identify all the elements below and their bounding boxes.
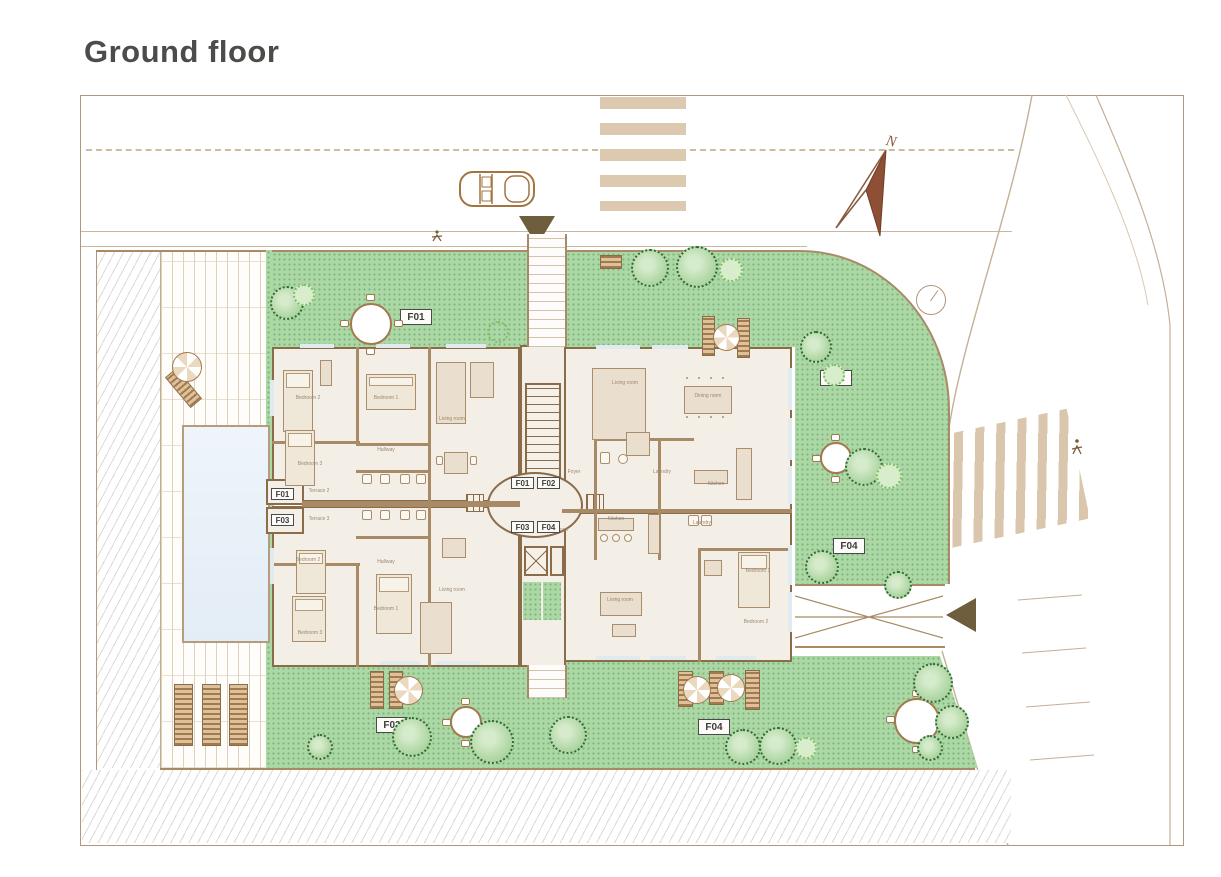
apartment-label-f04: F04 xyxy=(698,719,730,735)
room-label: Bedroom 1 xyxy=(736,569,780,575)
armchair xyxy=(470,362,494,398)
garden-chair xyxy=(831,476,840,483)
chair xyxy=(722,416,724,418)
atrium-planter xyxy=(543,582,561,620)
sidewalk-edge xyxy=(567,246,807,247)
tree xyxy=(307,734,333,760)
side-hatch-area xyxy=(96,252,160,768)
bath-fixture xyxy=(416,474,426,484)
ottoman xyxy=(626,432,650,456)
room-label: Foyer xyxy=(558,470,590,476)
shaft xyxy=(550,546,564,576)
window xyxy=(270,380,274,416)
tree xyxy=(917,735,943,761)
garden-chair xyxy=(394,320,403,327)
garden-chair xyxy=(442,719,451,726)
bath-fixture xyxy=(400,510,410,520)
sink xyxy=(618,454,628,464)
window xyxy=(716,656,756,660)
sofa xyxy=(600,592,642,616)
bed xyxy=(285,430,315,486)
window xyxy=(788,418,792,460)
parasol-icon xyxy=(394,676,423,705)
tree xyxy=(823,364,845,386)
door-label-f03: F03 xyxy=(511,521,534,533)
garden-chair xyxy=(366,348,375,355)
room-label: Bedroom 2 xyxy=(286,396,330,402)
window xyxy=(376,344,410,348)
chair xyxy=(710,377,712,379)
room-label: Hallway xyxy=(364,560,408,566)
room-label: Kitchen xyxy=(698,482,734,488)
interior-wall xyxy=(594,512,597,560)
room-label: Dining room xyxy=(684,394,732,400)
window xyxy=(380,661,420,665)
room-label: Kitchen xyxy=(598,517,634,523)
room-label: Terrace 3 xyxy=(302,517,336,523)
interior-wall xyxy=(658,438,661,514)
pedestrian-icon xyxy=(430,229,444,243)
atrium-planter xyxy=(523,582,541,620)
window xyxy=(596,345,640,349)
window xyxy=(270,548,274,584)
interior-wall xyxy=(698,548,701,662)
interior-wall xyxy=(356,347,359,445)
door-label-f01: F01 xyxy=(511,477,534,489)
room-label: Bedroom 2 xyxy=(734,620,778,626)
tree xyxy=(913,663,953,703)
driveway xyxy=(795,584,945,648)
toilet xyxy=(600,452,610,464)
garden-chair xyxy=(831,434,840,441)
road-centerline xyxy=(86,149,598,151)
wardrobe xyxy=(320,360,332,386)
bath-fixture xyxy=(416,510,426,520)
car-icon xyxy=(458,168,536,210)
interior-wall xyxy=(356,470,431,473)
garden-chair xyxy=(366,294,375,301)
tree xyxy=(676,246,718,288)
room-label: Bedroom 2 xyxy=(286,558,330,564)
floor-plan-page: Ground floor N xyxy=(0,0,1221,877)
sun-lounger xyxy=(229,684,248,746)
interior-wall xyxy=(594,438,597,514)
crosswalk-top xyxy=(600,97,686,211)
garden-chair xyxy=(340,320,349,327)
kitchen-counter xyxy=(648,514,660,554)
gate-lines xyxy=(795,586,945,646)
sidewalk-edge xyxy=(81,246,527,247)
tree xyxy=(392,717,432,757)
interior-wall xyxy=(698,548,792,551)
tree xyxy=(470,720,514,764)
window xyxy=(596,656,640,660)
tree xyxy=(719,258,743,282)
party-wall xyxy=(302,501,520,507)
coffee-table xyxy=(612,624,636,637)
stool xyxy=(600,534,608,542)
window xyxy=(300,344,334,348)
window xyxy=(446,344,486,348)
plot-west-line xyxy=(96,250,97,770)
armchair xyxy=(704,560,722,576)
room-label: Bedroom 3 xyxy=(288,462,332,468)
tree xyxy=(293,284,315,306)
staircase xyxy=(525,383,561,479)
party-wall xyxy=(562,509,792,513)
entrance-walkway-north xyxy=(527,234,567,347)
sun-lounger xyxy=(370,671,384,709)
door-label-f04: F04 xyxy=(537,521,560,533)
garden-chair xyxy=(886,716,895,723)
interior-wall xyxy=(356,563,359,667)
tree xyxy=(631,249,669,287)
room-label: Living room xyxy=(596,598,644,604)
kitchen-counter xyxy=(736,448,752,500)
room-label: Living room xyxy=(428,588,476,594)
sofa xyxy=(420,602,452,654)
chair xyxy=(710,416,712,418)
window xyxy=(788,592,792,632)
bath-fixture xyxy=(362,510,372,520)
window xyxy=(436,661,480,665)
parasol-icon xyxy=(713,324,740,351)
bed xyxy=(738,552,770,608)
chair xyxy=(470,456,477,465)
window xyxy=(788,368,792,410)
apartment-label-f01: F01 xyxy=(400,309,432,325)
tree xyxy=(805,550,839,584)
page-title: Ground floor xyxy=(84,34,279,70)
chair xyxy=(698,377,700,379)
plot-south-wall xyxy=(160,768,975,770)
garden-chair xyxy=(461,740,470,747)
bed xyxy=(376,574,412,634)
apartment-label-f04-east: F04 xyxy=(833,538,865,554)
driveway-arrow-icon xyxy=(946,598,976,632)
garden-table xyxy=(350,303,392,345)
chair xyxy=(686,416,688,418)
window xyxy=(652,345,688,349)
tree xyxy=(487,321,509,343)
dining-table xyxy=(444,452,468,474)
parasol-icon xyxy=(717,674,745,702)
interior-wall xyxy=(356,536,431,539)
tree xyxy=(795,737,817,759)
room-label: Laundry xyxy=(644,470,680,476)
walkway-south xyxy=(527,665,567,698)
stool xyxy=(612,534,620,542)
tree xyxy=(725,729,761,765)
sun-lounger xyxy=(174,684,193,746)
room-label: Bedroom 3 xyxy=(288,631,332,637)
stool xyxy=(624,534,632,542)
garden-chair xyxy=(461,698,470,705)
elevator xyxy=(524,546,548,576)
swimming-pool xyxy=(182,425,270,643)
room-label: Terrace 2 xyxy=(302,489,336,495)
sofa xyxy=(436,362,466,424)
tree xyxy=(800,331,832,363)
dining-table xyxy=(684,386,732,414)
tree xyxy=(935,705,969,739)
tree xyxy=(759,727,797,765)
bottom-hatch-area xyxy=(82,770,1011,843)
tree xyxy=(876,463,902,489)
room-label: Bedroom 1 xyxy=(364,396,408,402)
chair xyxy=(436,456,443,465)
room-label: Bedroom 1 xyxy=(364,607,408,613)
sofa xyxy=(592,368,646,440)
interior-wall xyxy=(428,347,431,504)
chair xyxy=(722,377,724,379)
dining-table xyxy=(442,538,466,558)
sun-lounger xyxy=(202,684,221,746)
parasol-icon xyxy=(172,352,202,382)
window xyxy=(788,466,792,504)
interior-wall xyxy=(356,443,431,446)
parasol-icon xyxy=(683,676,711,704)
plot-north-wall xyxy=(96,250,272,252)
chair xyxy=(698,416,700,418)
garden-steps xyxy=(600,255,622,269)
window xyxy=(788,545,792,585)
bath-fixture xyxy=(400,474,410,484)
terrace-label-f03: F03 xyxy=(271,514,294,526)
chair xyxy=(686,377,688,379)
north-compass-icon xyxy=(828,128,912,244)
room-label: Living room xyxy=(428,417,476,423)
bed xyxy=(366,374,416,410)
terrace-label-f01: F01 xyxy=(271,488,294,500)
tree xyxy=(884,571,912,599)
door-label-f02: F02 xyxy=(537,477,560,489)
garden-steps xyxy=(745,670,760,710)
garden-chair xyxy=(812,455,821,462)
room-label: Laundry xyxy=(684,521,720,527)
tree xyxy=(549,716,587,754)
room-label: Living room xyxy=(601,381,649,387)
window xyxy=(650,656,686,660)
bath-fixture xyxy=(362,474,372,484)
bath-fixture xyxy=(380,474,390,484)
room-label: Hallway xyxy=(364,448,408,454)
bath-fixture xyxy=(380,510,390,520)
